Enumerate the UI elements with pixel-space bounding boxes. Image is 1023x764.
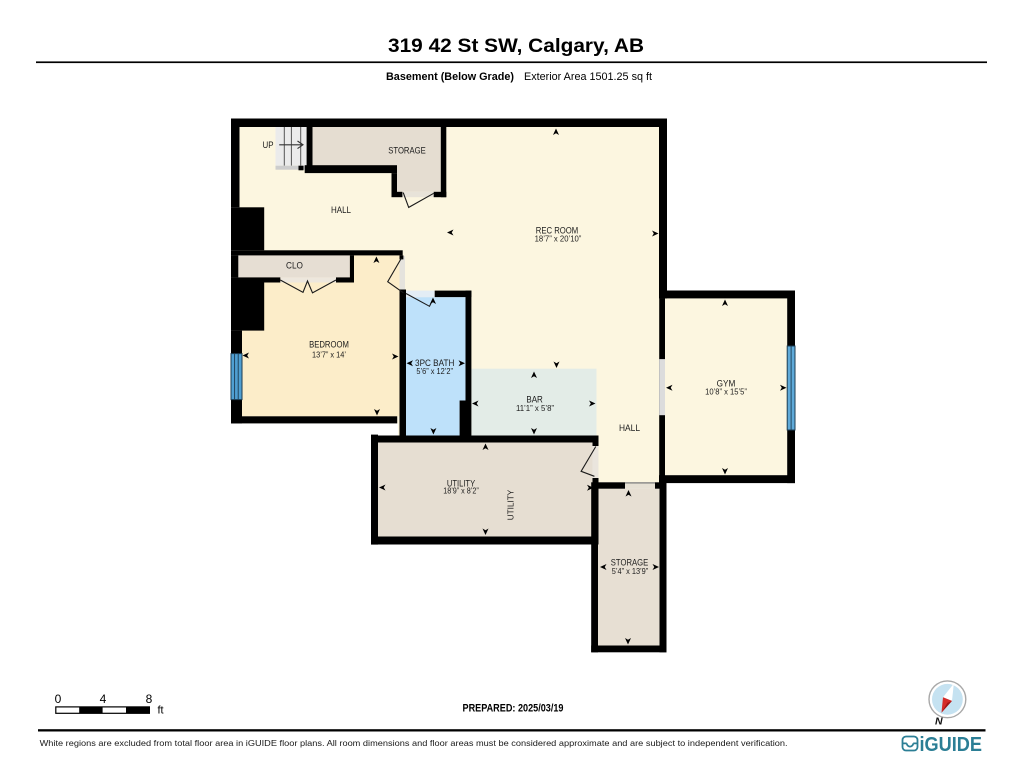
svg-text:N: N bbox=[935, 716, 943, 728]
svg-text:Exterior Area 1501.25 sq ft: Exterior Area 1501.25 sq ft bbox=[524, 71, 652, 83]
svg-text:HALL: HALL bbox=[331, 205, 351, 215]
svg-text:CLO: CLO bbox=[286, 261, 303, 271]
svg-text:HALL: HALL bbox=[619, 423, 640, 433]
svg-text:Basement (Below Grade): Basement (Below Grade) bbox=[386, 71, 514, 83]
svg-text:13’7” x 14’: 13’7” x 14’ bbox=[312, 351, 346, 360]
svg-text:UP: UP bbox=[263, 140, 274, 150]
svg-text:0: 0 bbox=[55, 692, 62, 706]
svg-text:STORAGE: STORAGE bbox=[611, 557, 649, 567]
svg-text:PREPARED: 2025/03/19: PREPARED: 2025/03/19 bbox=[463, 703, 564, 715]
svg-text:White regions are excluded fro: White regions are excluded from total fl… bbox=[40, 738, 788, 748]
svg-text:10’8” x 15’5”: 10’8” x 15’5” bbox=[705, 388, 747, 397]
svg-text:18’7” x 20’10”: 18’7” x 20’10” bbox=[535, 235, 582, 244]
svg-text:5’6” x 12’2”: 5’6” x 12’2” bbox=[416, 367, 453, 376]
svg-text:319 42 St SW, Calgary, AB: 319 42 St SW, Calgary, AB bbox=[388, 36, 644, 57]
svg-text:18’9” x 8’2”: 18’9” x 8’2” bbox=[443, 487, 479, 496]
svg-text:ft: ft bbox=[158, 705, 164, 717]
svg-text:11’1” x 5’8”: 11’1” x 5’8” bbox=[516, 404, 554, 413]
svg-text:BAR: BAR bbox=[526, 394, 543, 404]
svg-text:8: 8 bbox=[146, 692, 153, 706]
svg-text:iGUIDE: iGUIDE bbox=[920, 733, 983, 756]
svg-text:4: 4 bbox=[100, 692, 107, 706]
svg-text:UTILITY: UTILITY bbox=[507, 489, 516, 520]
svg-text:BEDROOM: BEDROOM bbox=[309, 339, 349, 349]
svg-text:5’4” x 13’9”: 5’4” x 13’9” bbox=[612, 567, 649, 576]
svg-text:STORAGE: STORAGE bbox=[388, 145, 426, 155]
